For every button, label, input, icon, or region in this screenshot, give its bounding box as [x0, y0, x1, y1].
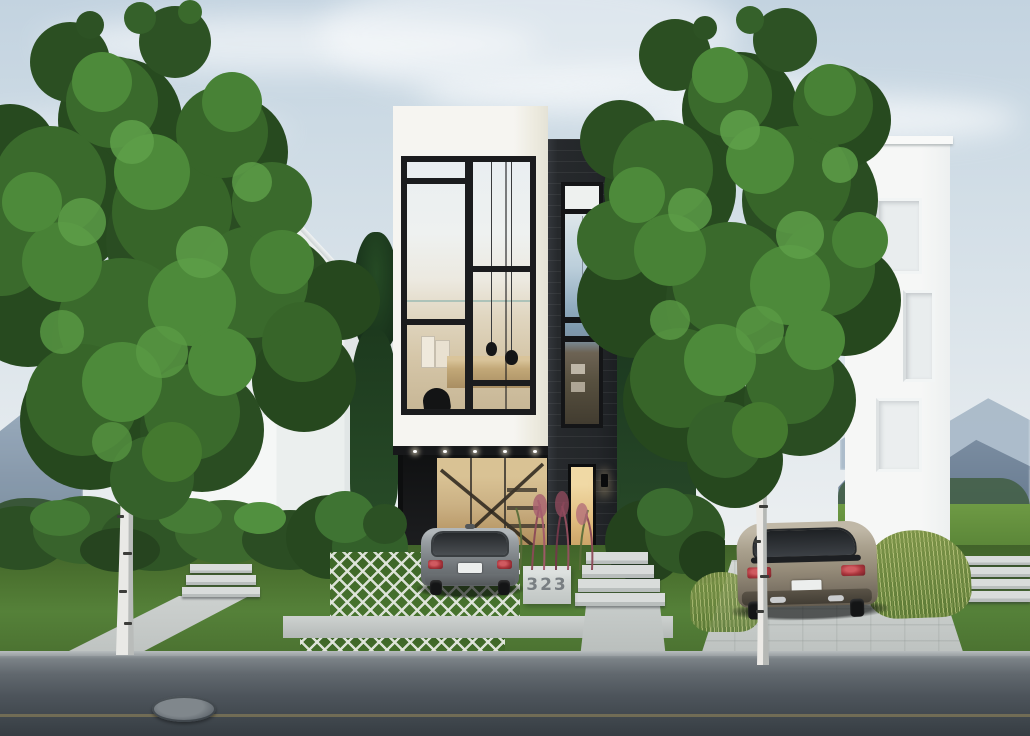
car-wheel — [430, 580, 442, 595]
soffit-downlight — [533, 450, 537, 453]
window-mullion — [469, 380, 536, 386]
house-number: 323 — [526, 575, 568, 595]
pendant-cord — [491, 156, 492, 344]
window-mullion-vertical — [465, 156, 473, 415]
car-taillight — [497, 560, 512, 569]
tree-canopy — [577, 6, 901, 508]
car-license-plate — [458, 563, 482, 573]
soffit-downlight — [503, 450, 507, 453]
soffit-downlight — [473, 450, 477, 453]
manhole-cover — [152, 696, 216, 722]
car-rear-window — [433, 533, 507, 555]
pendant-cord — [511, 156, 512, 352]
birch-tree-right — [575, 0, 905, 690]
grey-hatchback-car — [421, 518, 519, 598]
pendant-lamp — [505, 350, 518, 365]
tree-canopy — [0, 0, 380, 520]
exterior-render-scene: 323 — [0, 0, 1030, 736]
window-frame — [530, 156, 536, 415]
right-house-window — [903, 290, 935, 382]
car-taillight — [428, 560, 443, 569]
car-wheel — [498, 580, 510, 595]
window-mullion — [469, 266, 536, 272]
car-roof-antenna — [465, 524, 475, 529]
soffit-downlight — [443, 450, 447, 453]
pendant-lamp — [486, 342, 497, 356]
glazing-joint — [505, 162, 507, 409]
birch-tree-left — [0, 0, 430, 680]
